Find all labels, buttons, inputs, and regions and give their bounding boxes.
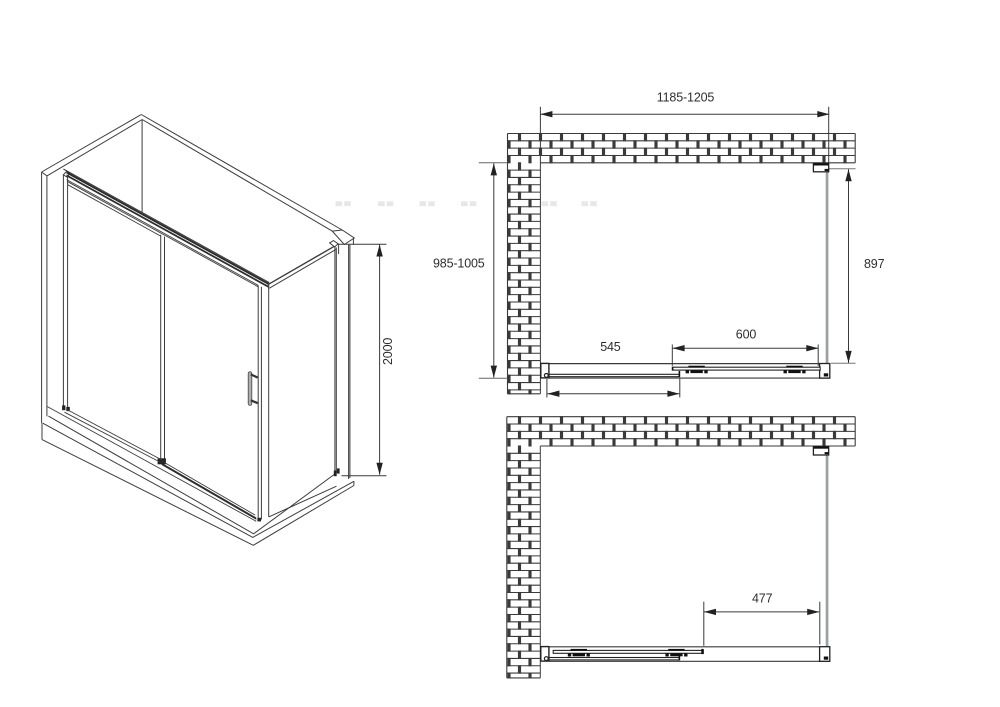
svg-text:545: 545 — [600, 340, 621, 354]
svg-text:985-1005: 985-1005 — [433, 257, 485, 271]
svg-text:477: 477 — [752, 592, 773, 606]
svg-text:600: 600 — [736, 327, 757, 341]
svg-text:897: 897 — [864, 257, 885, 271]
svg-text:2000: 2000 — [381, 338, 395, 365]
svg-text:1185-1205: 1185-1205 — [657, 90, 715, 104]
